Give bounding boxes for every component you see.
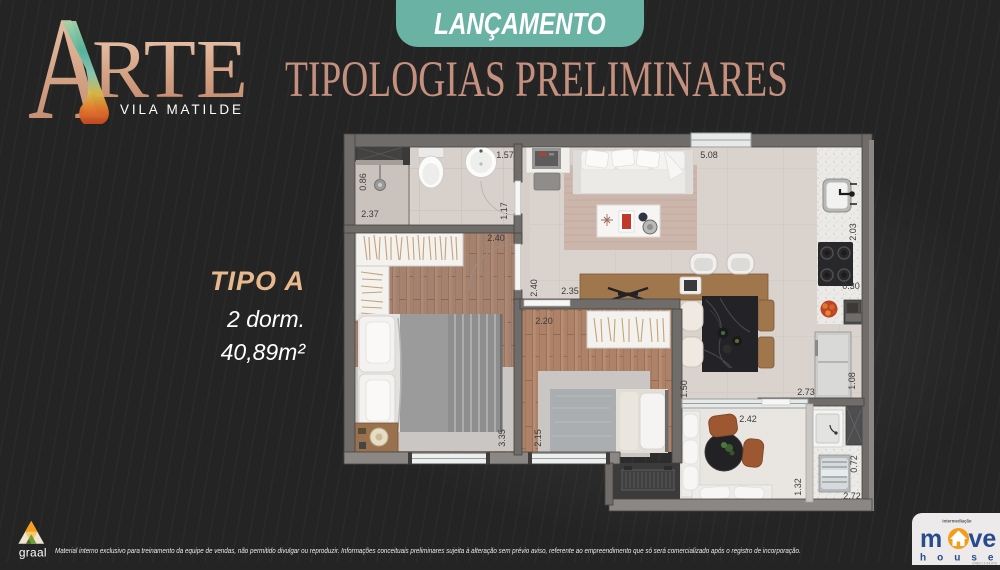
svg-text:ve: ve <box>969 525 997 553</box>
svg-text:0.30: 0.30 <box>842 281 860 291</box>
svg-text:3.35: 3.35 <box>497 429 507 447</box>
svg-text:2.42: 2.42 <box>739 414 757 424</box>
svg-text:1.08: 1.08 <box>847 372 857 390</box>
svg-text:1.57: 1.57 <box>496 150 514 160</box>
svg-text:m: m <box>920 525 942 553</box>
svg-text:1.17: 1.17 <box>499 202 509 220</box>
svg-text:2.40: 2.40 <box>529 279 539 297</box>
svg-text:1.50: 1.50 <box>679 380 689 398</box>
svg-text:graal: graal <box>19 546 47 560</box>
svg-text:Intermediação: Intermediação <box>942 519 972 524</box>
svg-text:2.15: 2.15 <box>533 429 543 447</box>
svg-text:2.37: 2.37 <box>361 209 379 219</box>
svg-text:2.35: 2.35 <box>561 286 579 296</box>
svg-text:0.72: 0.72 <box>849 455 859 473</box>
svg-text:2.73: 2.73 <box>797 387 815 397</box>
svg-text:CRECI J-24.073: CRECI J-24.073 <box>972 562 997 566</box>
svg-text:2.20: 2.20 <box>535 316 553 326</box>
svg-text:2.40: 2.40 <box>487 233 505 243</box>
svg-text:0.86: 0.86 <box>358 173 368 191</box>
svg-text:1.32: 1.32 <box>793 478 803 496</box>
svg-text:2.72: 2.72 <box>843 491 861 501</box>
svg-text:2.03: 2.03 <box>848 223 858 241</box>
svg-text:5.08: 5.08 <box>700 150 718 160</box>
svg-text:VILA MATILDE: VILA MATILDE <box>120 102 245 117</box>
